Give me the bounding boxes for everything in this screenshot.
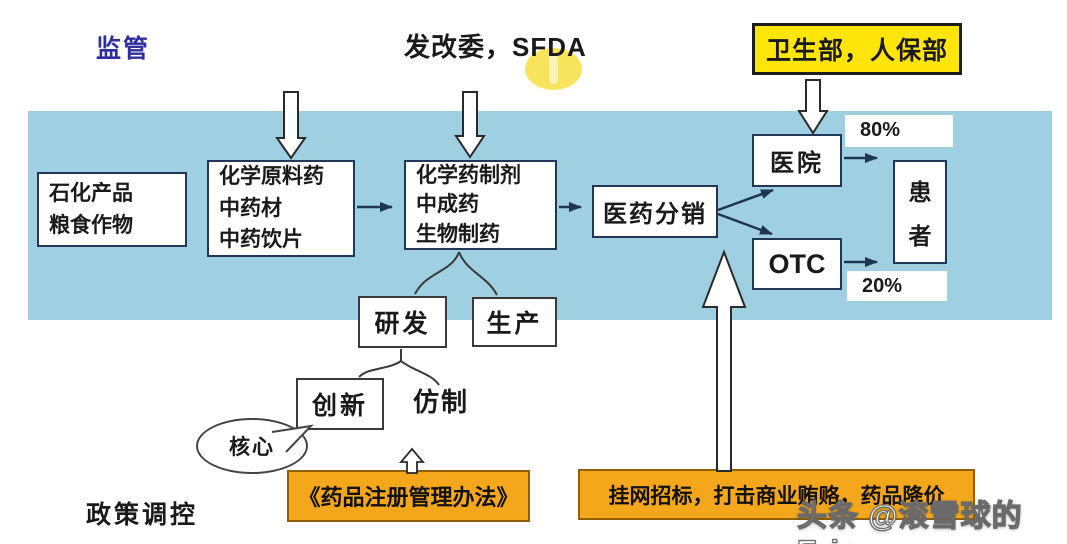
patient-char: 患	[909, 173, 932, 207]
regulator-label: 发改委，SFDA	[404, 27, 587, 64]
patient-char: 者	[909, 217, 932, 251]
hospital-box: 医院	[752, 134, 842, 187]
core-bubble: 核心	[196, 418, 308, 474]
api-line: 化学原料药	[219, 161, 353, 193]
raw-materials-line: 石化产品	[49, 178, 185, 210]
otc-box: OTC	[752, 238, 842, 290]
production-box: 生产	[472, 297, 557, 347]
brace-connector-rnd-innovation	[359, 361, 401, 377]
raw-materials-line: 粮食作物	[49, 210, 185, 242]
patient-box: 患 者	[893, 160, 947, 264]
raw-materials-box: 石化产品 粮食作物	[37, 172, 187, 247]
preparations-line: 化学药制剂	[416, 161, 555, 190]
hospital-share-label: 80%	[845, 115, 953, 147]
preparations-line: 中成药	[416, 190, 555, 219]
rnd-box: 研发	[358, 296, 447, 348]
supervision-label: 监管	[96, 29, 150, 65]
api-line: 中药饮片	[219, 224, 353, 256]
api-box: 化学原料药 中药材 中药饮片	[207, 160, 355, 257]
policy-section-label: 政策调控	[86, 495, 198, 531]
innovation-box: 创新	[296, 378, 384, 430]
watermark: 头条 @滚雪球的Eric	[797, 491, 1067, 544]
pharma-industry-chain-diagram: 监管 发改委，SFDA 卫生部，人保部 石化产品 粮食作物 化学原料药 中药材 …	[0, 0, 1067, 544]
generic-label: 仿制	[413, 382, 483, 419]
health-ministry-box: 卫生部，人保部	[752, 23, 962, 75]
distribution-box: 医药分销	[592, 185, 718, 238]
api-line: 中药材	[219, 193, 353, 225]
otc-share-label: 20%	[847, 271, 947, 301]
registration-policy-box: 《药品注册管理办法》	[287, 470, 530, 522]
preparations-line: 生物制药	[416, 220, 555, 249]
preparations-box: 化学药制剂 中成药 生物制药	[404, 160, 557, 250]
